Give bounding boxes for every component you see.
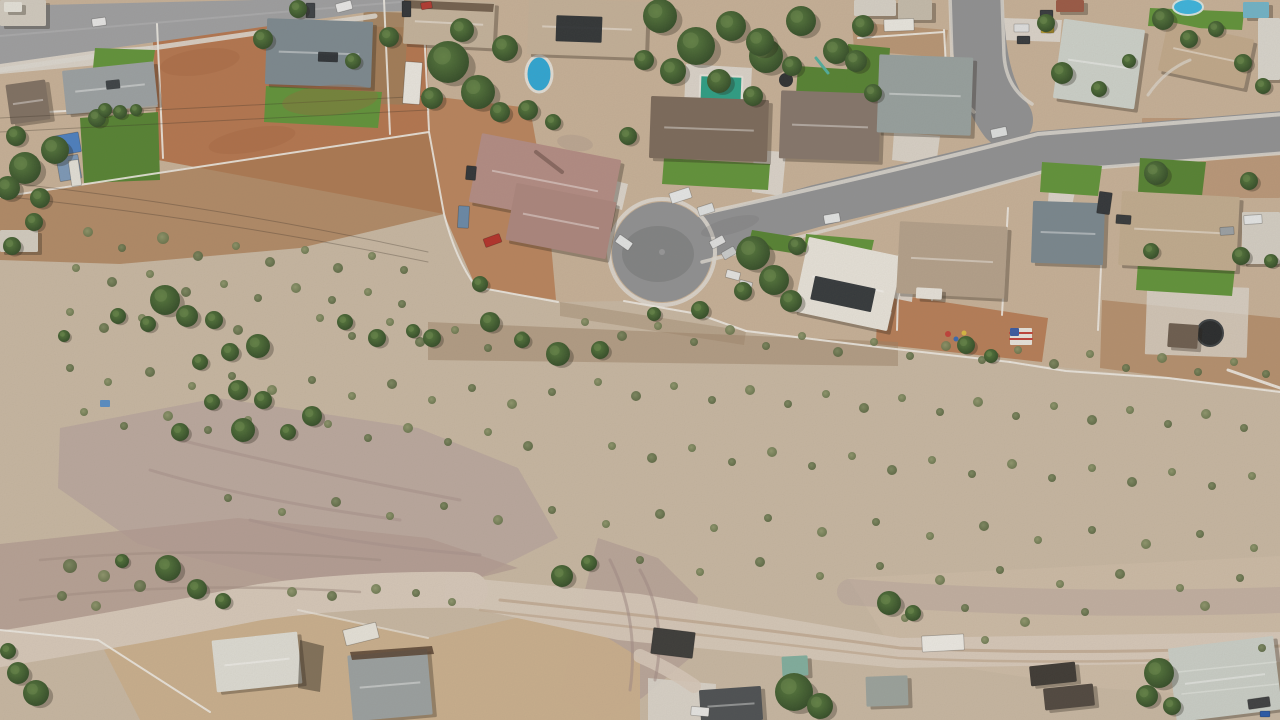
photo-grain-overlay <box>0 0 1280 720</box>
aerial-photo-stage <box>0 0 1280 720</box>
aerial-photo <box>0 0 1280 720</box>
